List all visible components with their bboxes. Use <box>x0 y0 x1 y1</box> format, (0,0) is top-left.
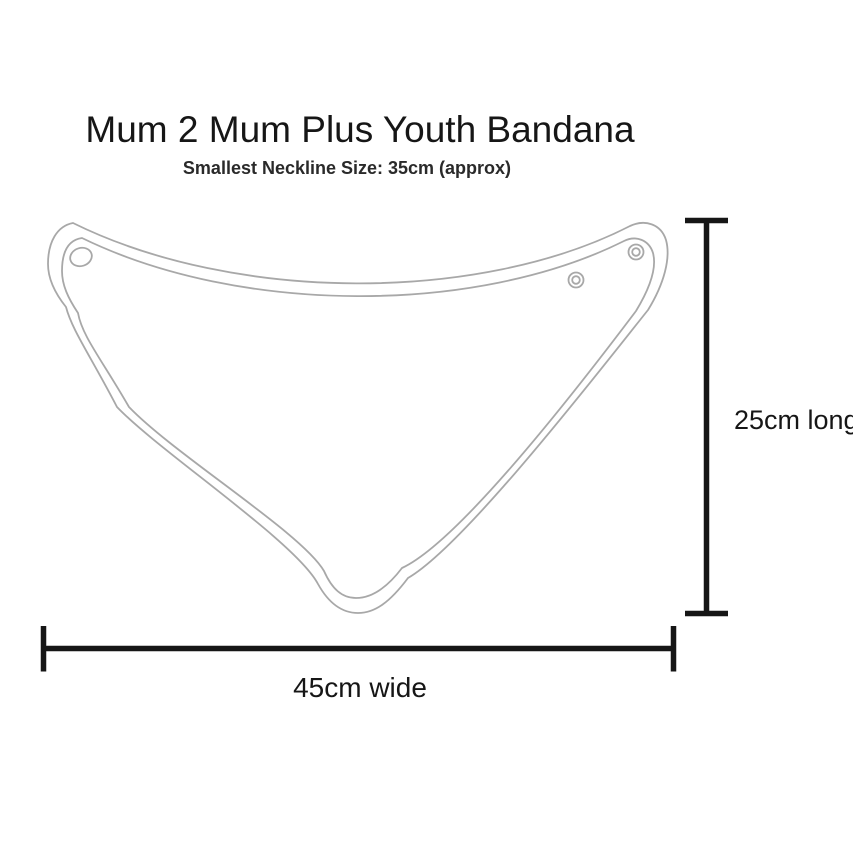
snap-button-right2-inner-ring-icon <box>572 276 580 284</box>
bandana-seam-line <box>62 238 654 598</box>
length-dimension-label: 25cm long <box>734 404 853 436</box>
bandana-outline-group <box>48 223 668 613</box>
dimension-lines-group <box>44 221 729 672</box>
snap-button-right2-outer-ring-icon <box>569 273 584 288</box>
snap-button-right-outer-ring-icon <box>629 245 644 260</box>
product-size-diagram-page: Mum 2 Mum Plus Youth Bandana Smallest Ne… <box>0 0 853 853</box>
snap-button-left-icon <box>68 245 94 269</box>
snap-button-right-inner-ring-icon <box>632 248 640 256</box>
width-dimension-label: 45cm wide <box>0 671 720 704</box>
bandana-diagram <box>0 0 853 853</box>
